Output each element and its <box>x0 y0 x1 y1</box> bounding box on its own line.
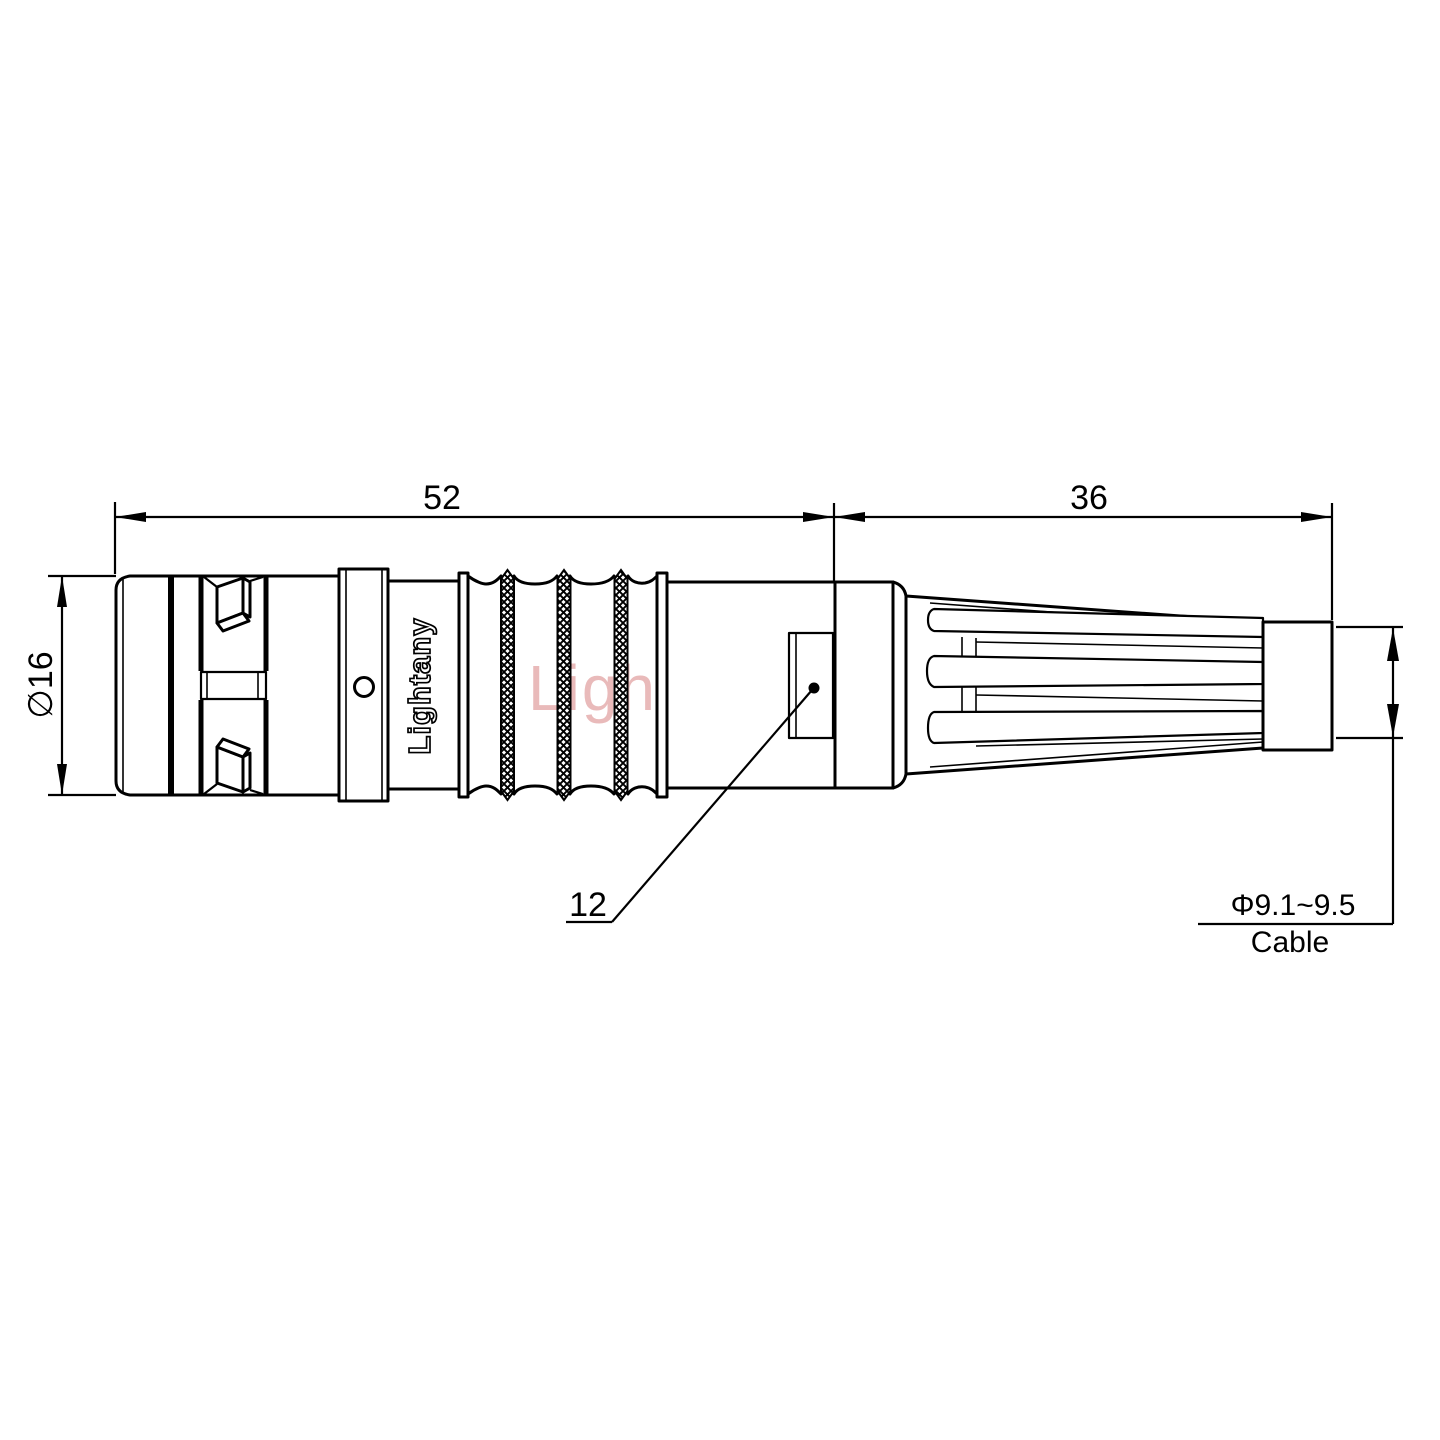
cable-exit-cylinder <box>1263 622 1332 750</box>
drawing-canvas: Lightany <box>0 0 1440 1440</box>
cable-label: Cable <box>1251 926 1329 959</box>
knurl-ring-2 <box>558 570 571 800</box>
leader-dot <box>809 683 820 694</box>
knurl-ring-1 <box>501 570 514 800</box>
dim-diameter: ∅16 <box>22 576 116 795</box>
strain-relief-boot <box>835 582 1263 788</box>
dim-36-label: 36 <box>1070 479 1108 517</box>
dim-diameter-label: ∅16 <box>22 651 60 718</box>
cable-diameter-label: Φ9.1~9.5 <box>1231 889 1356 922</box>
brand-section: Lightany <box>388 581 459 789</box>
connector-body: Lightany <box>116 569 1332 801</box>
keyway-label: 12 <box>569 886 607 924</box>
connector-drawing-svg: Lightany <box>0 0 1440 1440</box>
latch-bridge <box>201 672 266 699</box>
index-hole <box>355 678 374 697</box>
upper-latch-key <box>217 578 250 631</box>
knurl-ring-3 <box>615 570 628 800</box>
front-sleeve <box>116 576 339 795</box>
collar-section <box>339 569 388 801</box>
body-brand-text: Lightany <box>402 617 437 754</box>
dim-52-label: 52 <box>423 479 461 517</box>
lower-latch-key <box>217 739 250 792</box>
